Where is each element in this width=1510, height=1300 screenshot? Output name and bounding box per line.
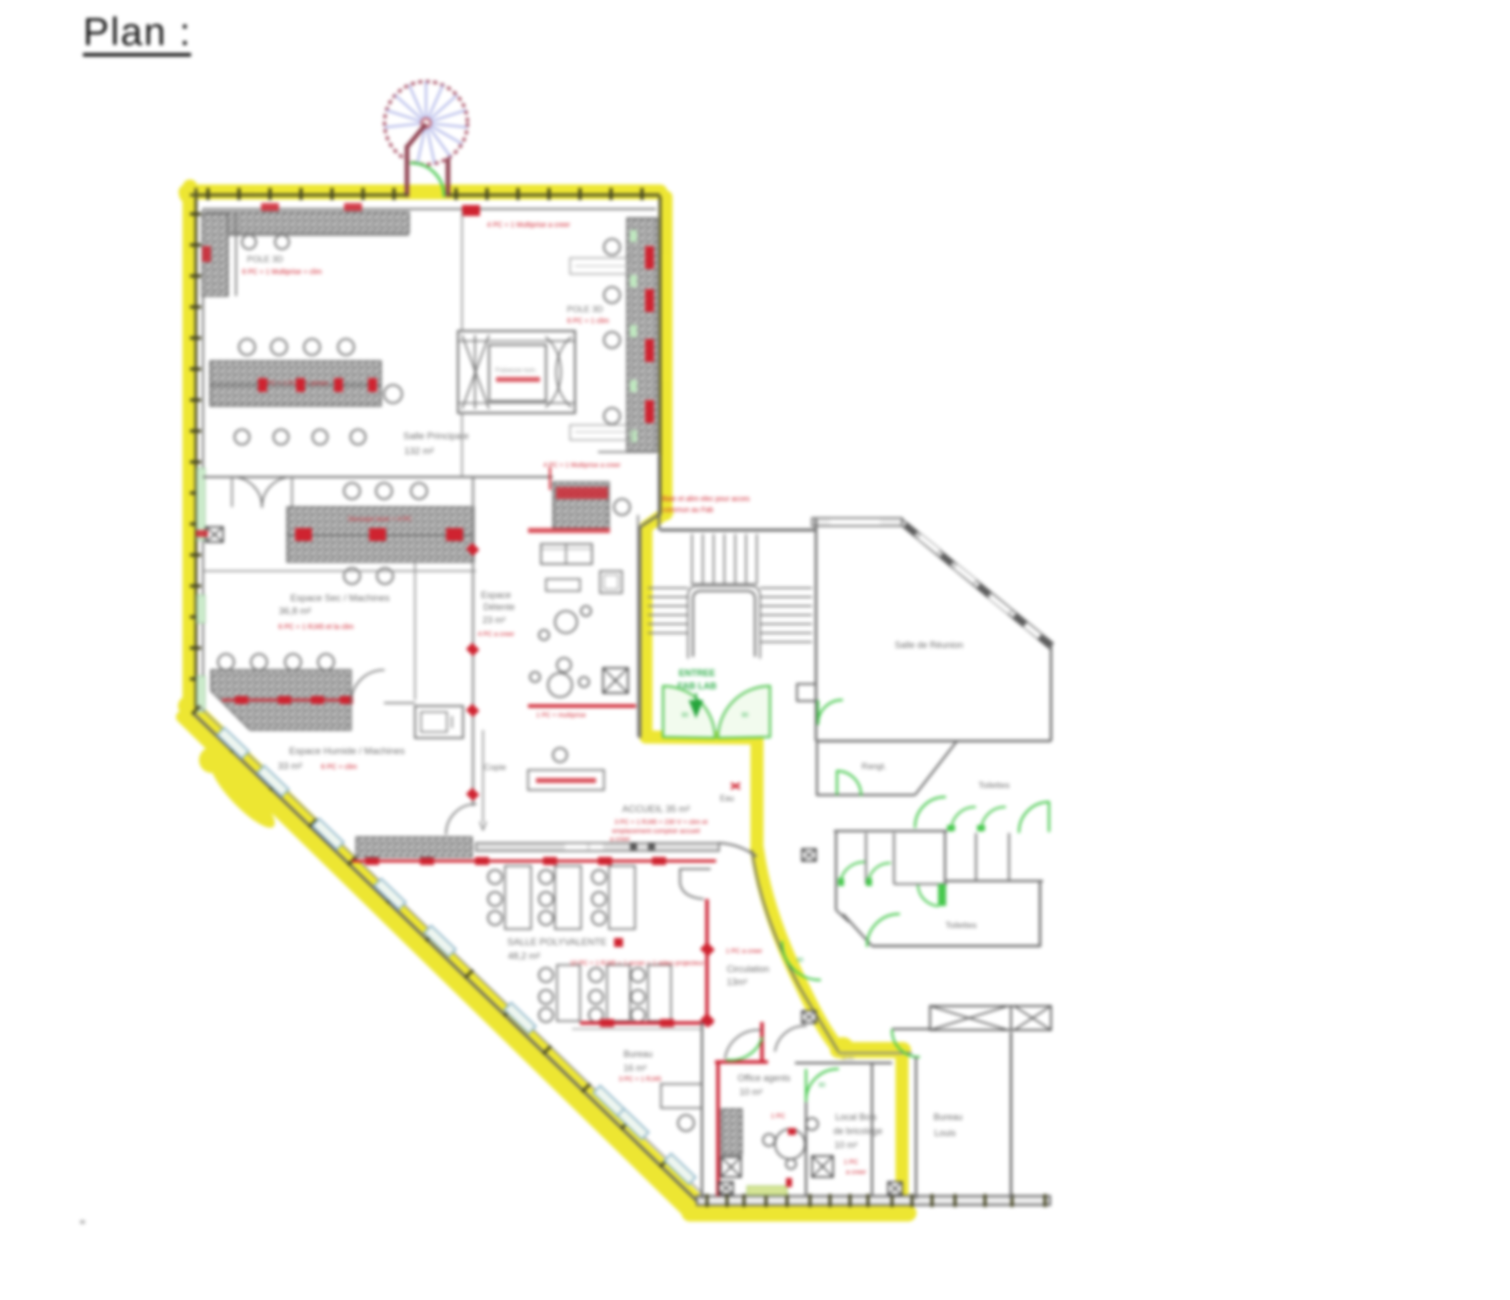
svg-text:Bureau: Bureau (623, 1049, 652, 1059)
svg-text:90: 90 (682, 713, 689, 719)
svg-text:SALLE POLYVALENTE: SALLE POLYVALENTE (507, 937, 606, 948)
svg-text:3 PC + 1 RJ45: 3 PC + 1 RJ45 (619, 1076, 662, 1083)
svg-text:23 m²: 23 m² (482, 615, 505, 625)
svg-text:Espace Humide / Machines: Espace Humide / Machines (289, 746, 405, 757)
svg-text:POLE 3D: POLE 3D (567, 304, 603, 314)
svg-text:33 m²: 33 m² (278, 761, 302, 772)
svg-text:Salle Principale: Salle Principale (403, 431, 468, 442)
svg-text:4 PC + 1 RJ45 + prises: 4 PC + 1 RJ45 + prises (261, 380, 329, 387)
svg-text:Circulation: Circulation (727, 964, 770, 974)
svg-text:Toilettes: Toilettes (945, 920, 976, 930)
svg-text:Détente: Détente (483, 602, 515, 612)
svg-text:90: 90 (742, 713, 749, 719)
svg-text:16 m²: 16 m² (623, 1063, 646, 1073)
svg-text:Salle de Réunion: Salle de Réunion (895, 640, 964, 650)
svg-text:Local Bois: Local Bois (835, 1112, 877, 1122)
svg-text:13m²: 13m² (727, 977, 748, 987)
svg-text:Decoupe laser + 4 PC: Decoupe laser + 4 PC (348, 516, 412, 523)
svg-text:a creer: a creer (610, 836, 631, 843)
svg-text:10 PC + 1 RJ45 + 1 ecran + 1 v: 10 PC + 1 RJ45 + 1 ecran + 1 video proje… (570, 960, 705, 967)
svg-text:10 m²: 10 m² (834, 1140, 857, 1150)
svg-text:1 PC + multiprise: 1 PC + multiprise (536, 712, 586, 719)
svg-text:Eau: Eau (720, 794, 734, 803)
svg-text:POLE 3D: POLE 3D (247, 254, 283, 264)
svg-text:Office agents: Office agents (738, 1073, 791, 1083)
svg-text:3 PC + 1 RJ45 + 230 V + clim e: 3 PC + 1 RJ45 + 230 V + clim et (614, 819, 707, 826)
svg-text:Bureau: Bureau (933, 1112, 962, 1122)
svg-text:6 PC + clim: 6 PC + clim (321, 764, 357, 771)
svg-text:1 PC: 1 PC (844, 1159, 859, 1166)
svg-text:6 PC + 1 clim: 6 PC + 1 clim (567, 318, 609, 325)
svg-text:emplacement comptoir accueil: emplacement comptoir accueil (612, 828, 700, 835)
svg-text:Plan :: Plan : (83, 11, 192, 54)
svg-text:90: 90 (797, 958, 804, 964)
svg-text:Espace Sec / Machines: Espace Sec / Machines (290, 593, 390, 604)
svg-text:6 PC + 1 Multiprise + clim: 6 PC + 1 Multiprise + clim (242, 269, 322, 276)
svg-text:48,2 m²: 48,2 m² (508, 951, 540, 962)
svg-text:2040: 2040 (842, 1056, 854, 1062)
svg-text:36,8 m²: 36,8 m² (279, 606, 311, 617)
svg-text:132 m²: 132 m² (404, 446, 434, 457)
svg-text:4 PC a creer: 4 PC a creer (478, 631, 515, 638)
svg-text:ACCUEIL 35 m²: ACCUEIL 35 m² (622, 804, 690, 815)
svg-text:ENTREE: ENTREE (679, 668, 716, 678)
svg-text:commun au Fab: commun au Fab (663, 507, 714, 514)
svg-text:1 PC: 1 PC (771, 1113, 786, 1120)
svg-text:10 m²: 10 m² (739, 1087, 762, 1097)
svg-text:1 PC a creer: 1 PC a creer (726, 948, 763, 955)
svg-text:90: 90 (819, 1083, 826, 1089)
svg-text:Rangt.: Rangt. (861, 761, 886, 771)
svg-text:4 PC + 1 Multiprise a creer: 4 PC + 1 Multiprise a creer (487, 222, 571, 229)
svg-text:4 PC + 1 Multiprise a creer: 4 PC + 1 Multiprise a creer (543, 462, 621, 469)
svg-text:Louis: Louis (934, 1128, 956, 1138)
svg-text:a creer: a creer (846, 1169, 867, 1176)
svg-text:de bricolage: de bricolage (833, 1126, 882, 1136)
svg-text:Toilettes: Toilettes (978, 780, 1009, 790)
svg-text:Copie: Copie (484, 762, 506, 772)
svg-text:Fraiseuse num.: Fraiseuse num. (495, 368, 537, 374)
svg-text:Espace: Espace (481, 590, 511, 600)
svg-text:Baie et alim elec pour acces: Baie et alim elec pour acces (662, 496, 750, 503)
svg-text:6 PC + 1 RJ45 et la clim: 6 PC + 1 RJ45 et la clim (278, 624, 353, 631)
